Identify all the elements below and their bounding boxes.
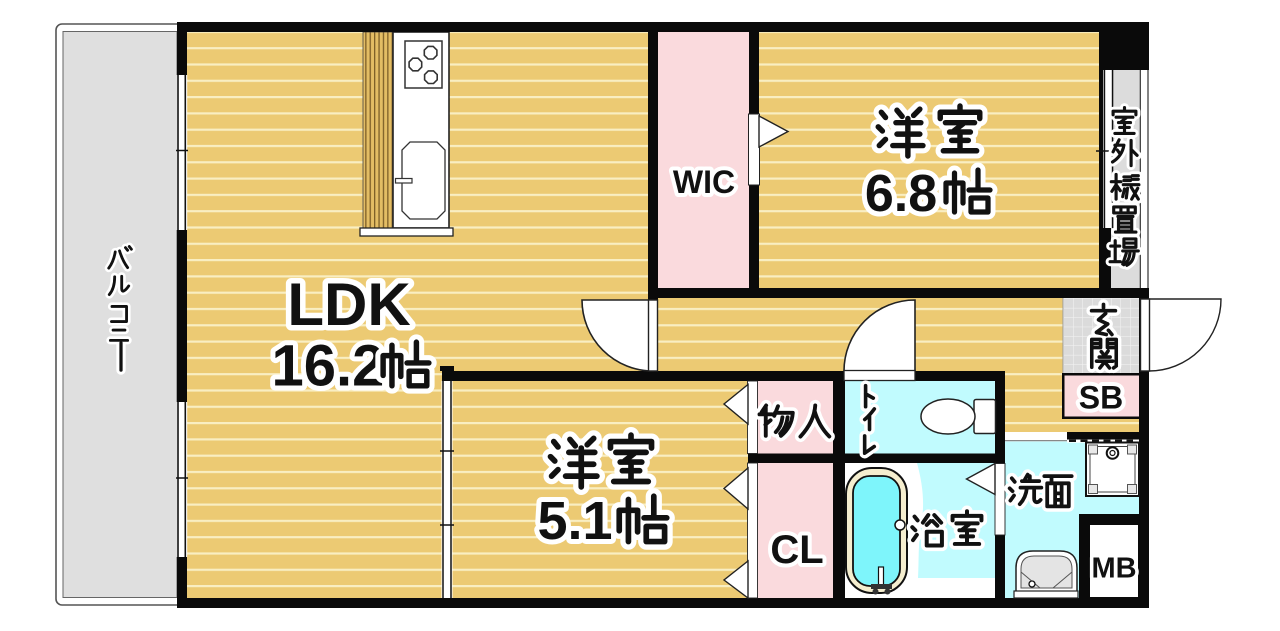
svg-text:6.8: 6.8 [865, 165, 937, 223]
svg-text:LDK: LDK [287, 271, 410, 338]
svg-text:MB: MB [1091, 553, 1136, 585]
svg-text:5.1: 5.1 [537, 491, 612, 551]
svg-text:WIC: WIC [673, 164, 735, 200]
svg-text:16.2: 16.2 [272, 334, 385, 399]
svg-text:SB: SB [1079, 380, 1123, 416]
svg-text:CL: CL [770, 528, 823, 572]
